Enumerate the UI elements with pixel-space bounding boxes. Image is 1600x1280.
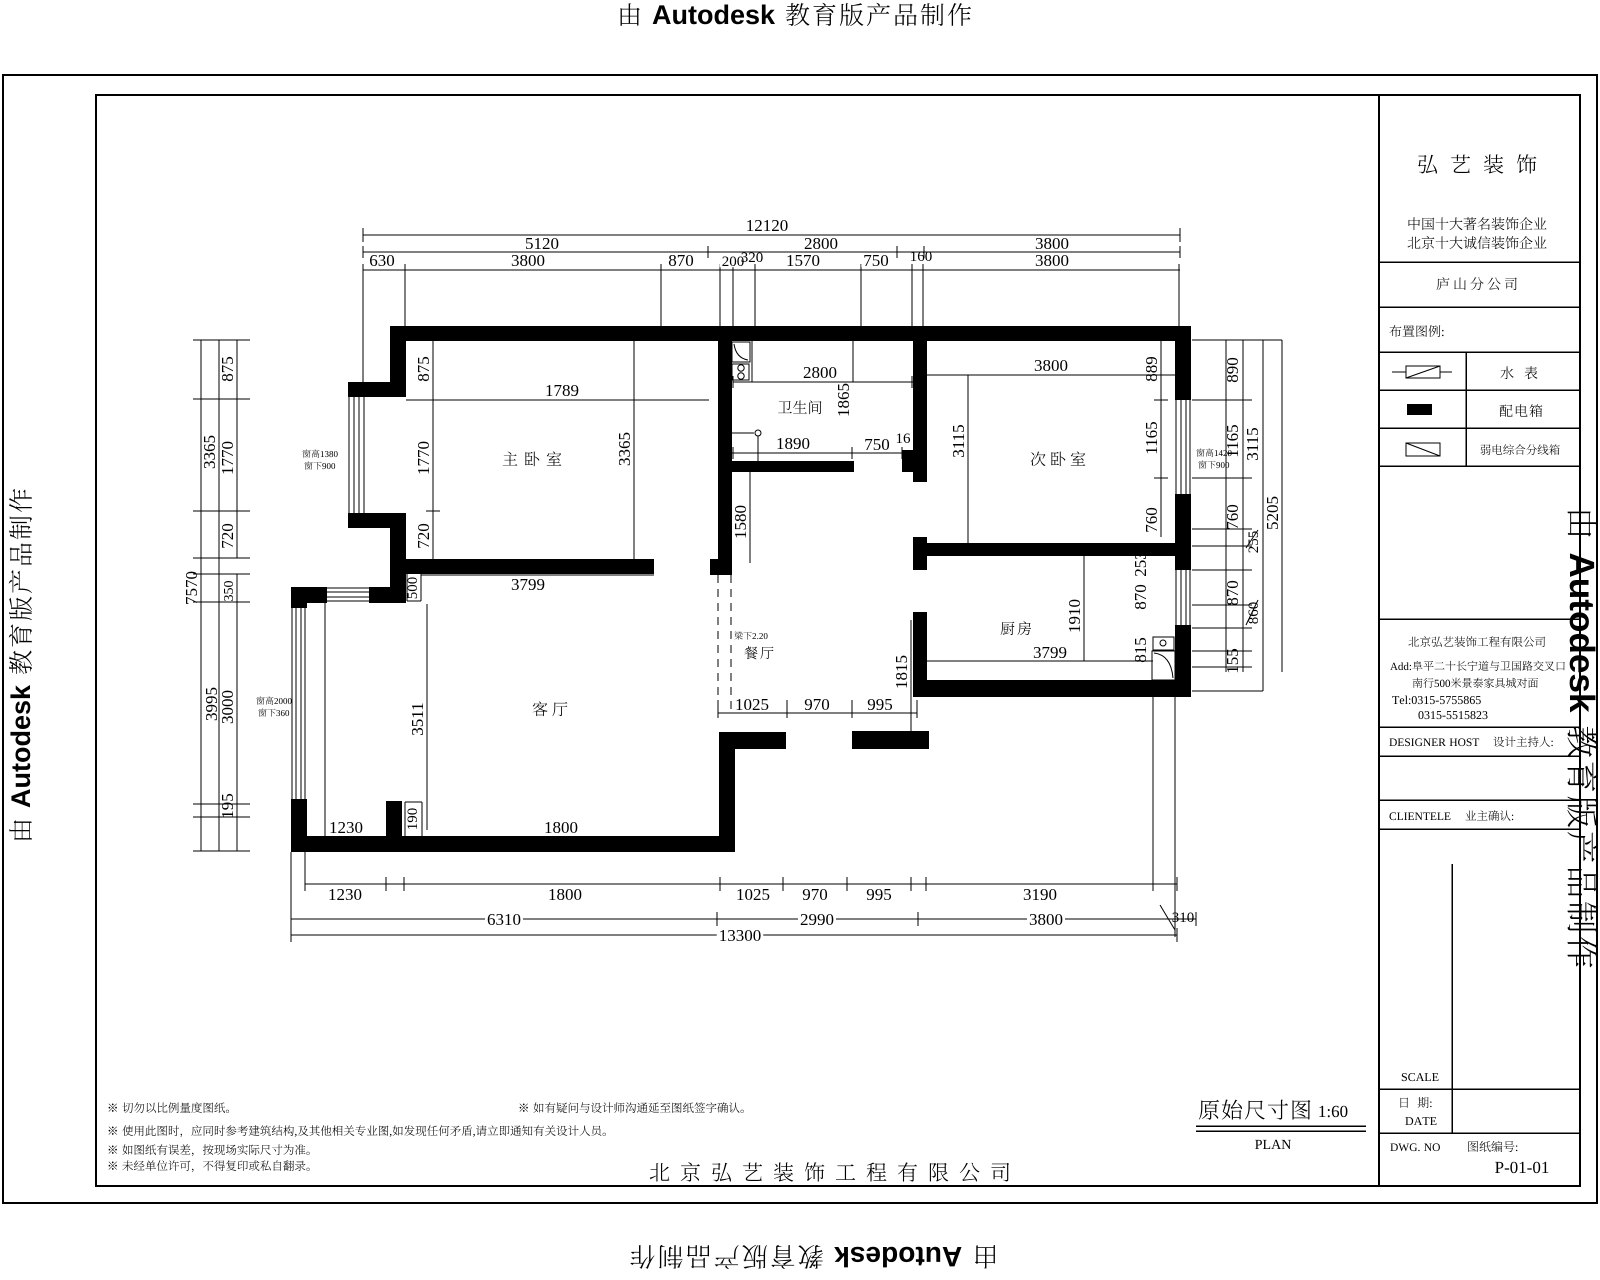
svg-text:875: 875 [414, 356, 433, 382]
svg-text:1025: 1025 [735, 695, 769, 714]
svg-text:1770: 1770 [414, 441, 433, 475]
svg-text:6310: 6310 [487, 910, 521, 929]
svg-text:3799: 3799 [511, 575, 545, 594]
svg-text:155: 155 [1223, 648, 1242, 674]
svg-text:1800: 1800 [548, 885, 582, 904]
svg-text:2800: 2800 [803, 363, 837, 382]
svg-text:350: 350 [222, 581, 237, 602]
svg-text:1890: 1890 [776, 434, 810, 453]
svg-text:3511: 3511 [408, 702, 427, 735]
svg-text:720: 720 [218, 523, 237, 549]
svg-text:970: 970 [802, 885, 828, 904]
svg-text:1815: 1815 [892, 655, 911, 689]
svg-text:889: 889 [1142, 356, 1161, 382]
svg-text:870: 870 [668, 251, 694, 270]
svg-text:750: 750 [863, 251, 889, 270]
svg-text:195: 195 [218, 793, 237, 819]
svg-text:500: 500 [405, 577, 421, 600]
svg-text:995: 995 [867, 695, 893, 714]
svg-text:1230: 1230 [329, 818, 363, 837]
svg-text:1165: 1165 [1223, 424, 1242, 457]
svg-text:3799: 3799 [1033, 643, 1067, 662]
svg-text:870: 870 [1223, 580, 1242, 606]
svg-text:13300: 13300 [719, 926, 762, 945]
svg-text:815: 815 [1131, 637, 1150, 663]
svg-text:160: 160 [910, 249, 933, 265]
svg-text:3000: 3000 [218, 690, 237, 724]
svg-text:190: 190 [405, 808, 421, 831]
svg-text:630: 630 [369, 251, 395, 270]
svg-text:1580: 1580 [731, 505, 750, 539]
svg-text:3115: 3115 [1243, 427, 1262, 460]
svg-text:1800: 1800 [544, 818, 578, 837]
svg-text:3800: 3800 [1034, 356, 1068, 375]
svg-text:3115: 3115 [949, 424, 968, 457]
svg-text:1865: 1865 [834, 383, 853, 417]
svg-text:320: 320 [741, 250, 764, 266]
svg-text:875: 875 [218, 356, 237, 382]
svg-text:3365: 3365 [200, 435, 219, 469]
svg-text:760: 760 [1142, 507, 1161, 533]
svg-text:2990: 2990 [800, 910, 834, 929]
svg-text:3190: 3190 [1023, 885, 1057, 904]
svg-text:870: 870 [1131, 584, 1150, 610]
svg-text:5205: 5205 [1263, 496, 1282, 530]
svg-text:3800: 3800 [1035, 251, 1069, 270]
svg-text:1789: 1789 [545, 381, 579, 400]
svg-text:7570: 7570 [182, 571, 201, 605]
svg-text:253: 253 [1131, 551, 1150, 577]
svg-text:3800: 3800 [511, 251, 545, 270]
svg-text:1165: 1165 [1142, 421, 1161, 454]
svg-text:1770: 1770 [218, 441, 237, 475]
svg-text:12120: 12120 [746, 216, 789, 235]
svg-text:750: 750 [864, 435, 890, 454]
svg-text:995: 995 [866, 885, 892, 904]
svg-text:890: 890 [1223, 357, 1242, 383]
svg-text:16: 16 [896, 431, 912, 447]
svg-text:3800: 3800 [1029, 910, 1063, 929]
svg-text:720: 720 [414, 523, 433, 549]
svg-text:1570: 1570 [786, 251, 820, 270]
svg-text:1230: 1230 [328, 885, 362, 904]
svg-text:3365: 3365 [615, 432, 634, 466]
svg-text:1025: 1025 [736, 885, 770, 904]
svg-text:760: 760 [1223, 504, 1242, 530]
svg-text:970: 970 [804, 695, 830, 714]
svg-text:255: 255 [1246, 531, 1262, 554]
svg-text:1910: 1910 [1065, 599, 1084, 633]
